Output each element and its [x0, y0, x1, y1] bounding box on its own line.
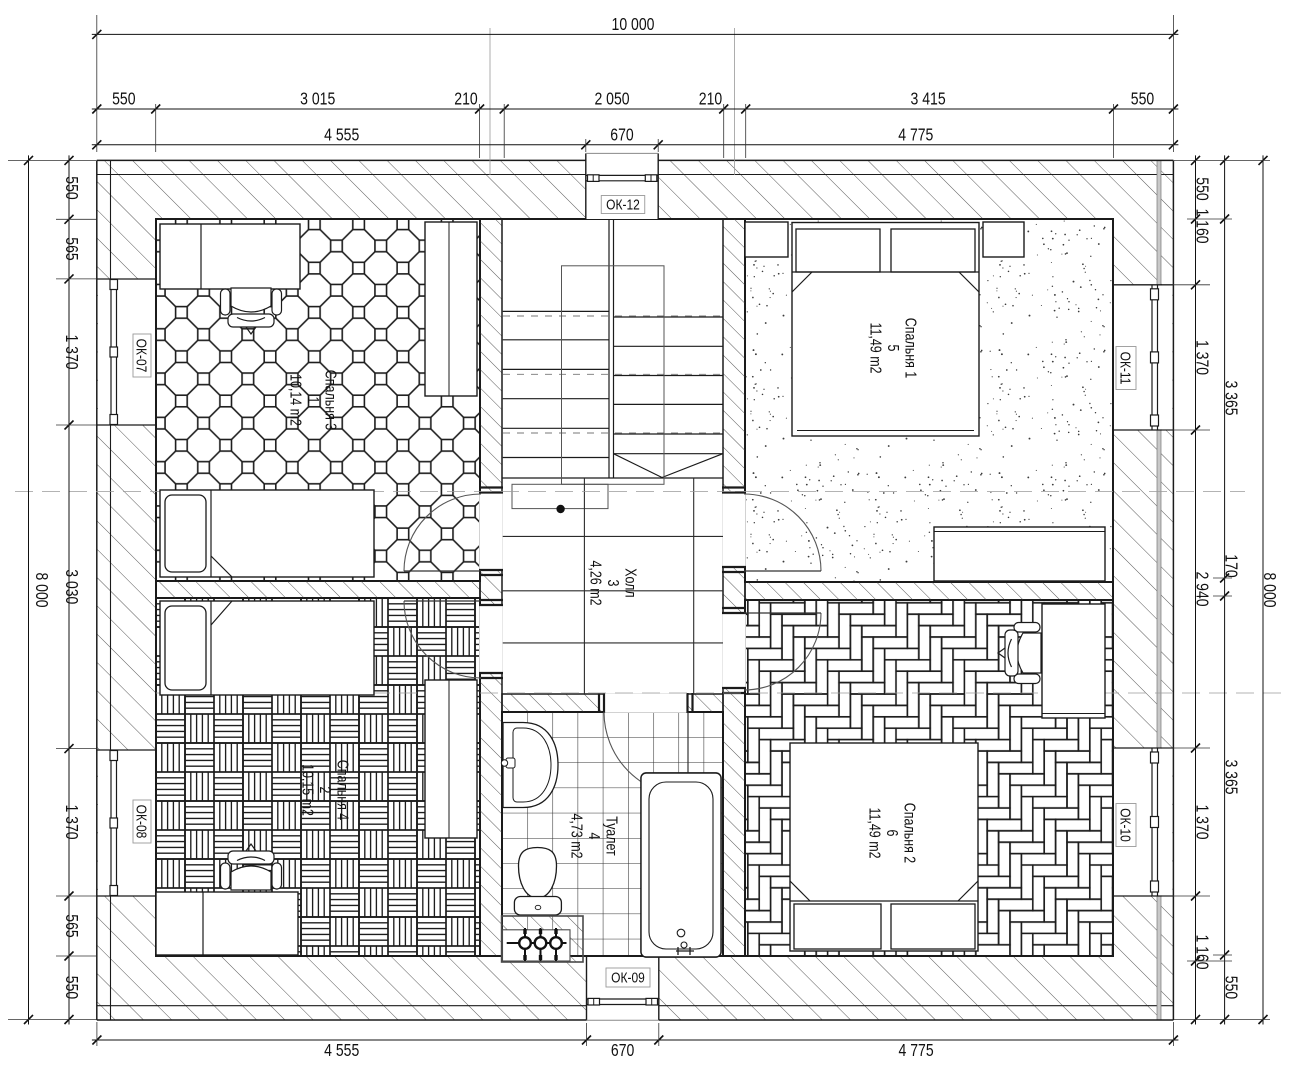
svg-text:550: 550	[62, 176, 82, 199]
svg-text:ОК-08: ОК-08	[133, 805, 150, 839]
svg-text:3 030: 3 030	[62, 569, 82, 604]
svg-text:1 370: 1 370	[62, 804, 82, 839]
svg-text:670: 670	[611, 1040, 634, 1060]
svg-text:565: 565	[62, 237, 82, 260]
svg-text:ОК-12: ОК-12	[606, 196, 640, 213]
svg-text:210: 210	[454, 89, 477, 109]
svg-text:1 160: 1 160	[1192, 934, 1212, 969]
svg-text:1 160: 1 160	[1192, 208, 1212, 243]
svg-text:4 775: 4 775	[899, 1040, 934, 1060]
svg-text:ОК-11: ОК-11	[1117, 352, 1134, 385]
svg-text:1 370: 1 370	[1192, 340, 1212, 375]
svg-text:550: 550	[112, 89, 135, 109]
svg-text:550: 550	[62, 976, 82, 999]
svg-text:4 775: 4 775	[898, 125, 933, 145]
svg-text:3 365: 3 365	[1221, 380, 1241, 415]
svg-text:ОК-07: ОК-07	[133, 339, 150, 373]
svg-text:565: 565	[62, 914, 82, 937]
svg-text:1 370: 1 370	[1192, 804, 1212, 839]
svg-text:4 555: 4 555	[324, 1040, 359, 1060]
svg-text:550: 550	[1131, 89, 1154, 109]
svg-text:8 000: 8 000	[32, 572, 52, 607]
svg-text:670: 670	[610, 125, 633, 145]
svg-text:210: 210	[699, 89, 722, 109]
svg-text:2 050: 2 050	[594, 89, 629, 109]
svg-text:550: 550	[1221, 976, 1241, 999]
svg-text:3 015: 3 015	[300, 89, 335, 109]
svg-text:ОК-10: ОК-10	[1117, 808, 1134, 842]
svg-text:3 365: 3 365	[1221, 759, 1241, 794]
svg-text:550: 550	[1192, 177, 1212, 200]
svg-text:2 940: 2 940	[1192, 571, 1212, 606]
svg-text:1 370: 1 370	[62, 334, 82, 369]
svg-text:170: 170	[1221, 554, 1241, 577]
svg-text:8 000: 8 000	[1260, 572, 1280, 607]
svg-text:3 415: 3 415	[911, 89, 946, 109]
svg-text:10 000: 10 000	[612, 14, 655, 34]
svg-text:4 555: 4 555	[324, 125, 359, 145]
svg-text:ОК-09: ОК-09	[611, 969, 645, 986]
